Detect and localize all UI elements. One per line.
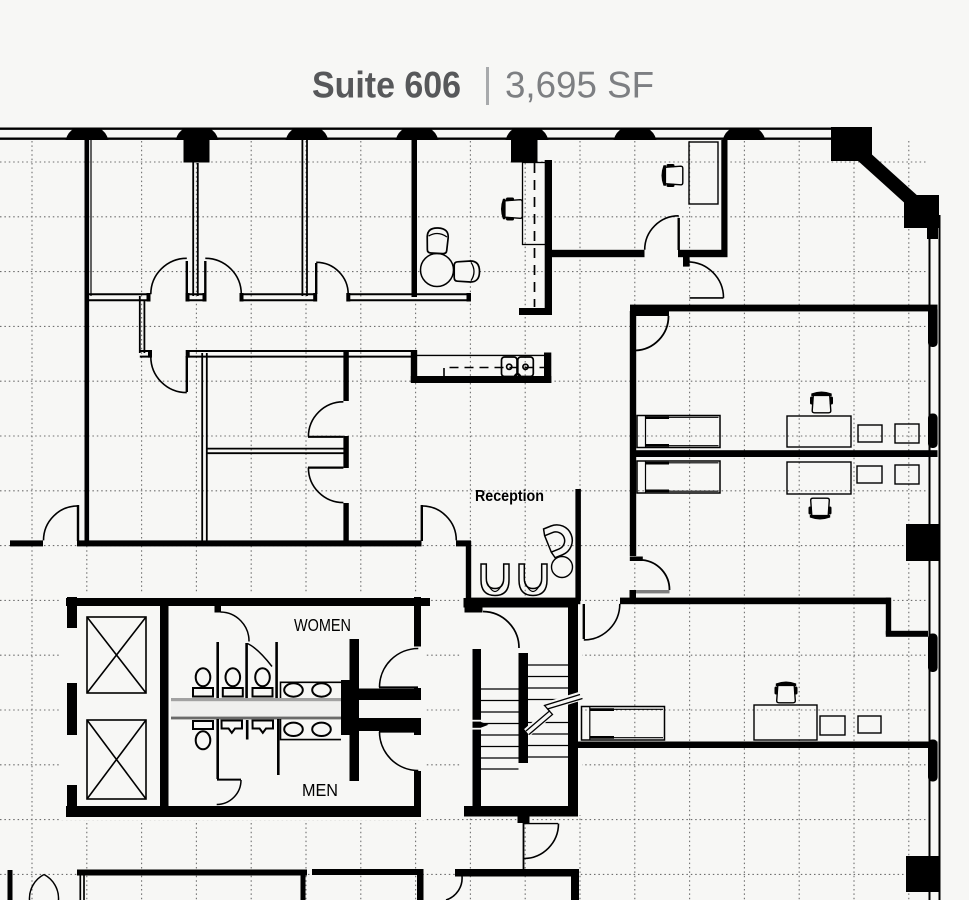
svg-text:3,695 SF: 3,695 SF (505, 65, 654, 106)
svg-text:Suite 606: Suite 606 (312, 65, 461, 106)
svg-text:WOMEN: WOMEN (294, 615, 351, 635)
svg-text:MEN: MEN (302, 780, 338, 800)
svg-text:Reception: Reception (475, 488, 544, 505)
